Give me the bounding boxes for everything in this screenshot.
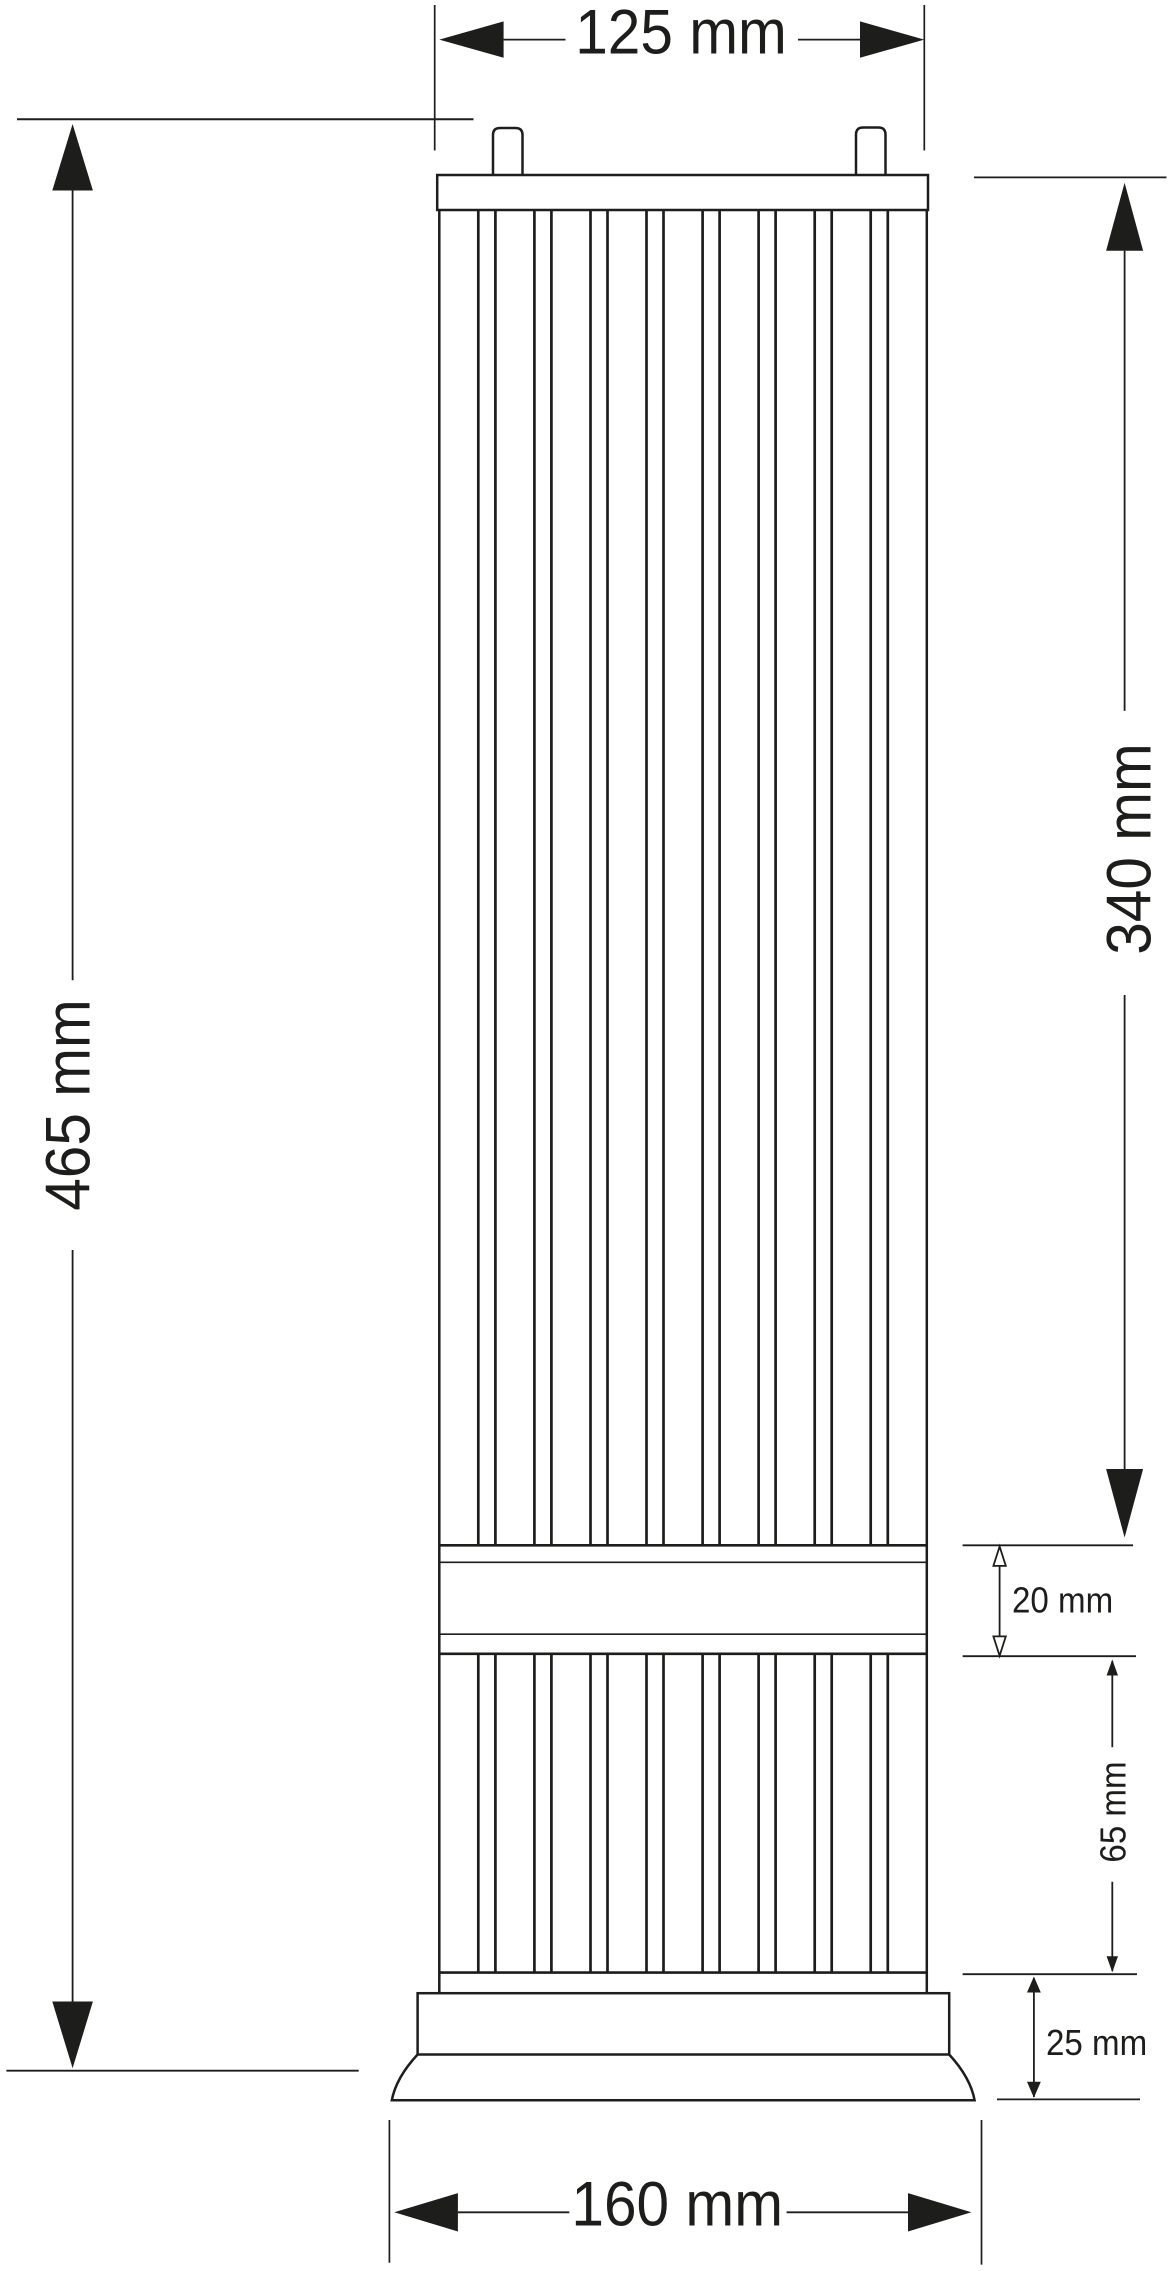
svg-text:465 mm: 465 mm <box>33 999 103 1211</box>
svg-text:125 mm: 125 mm <box>575 0 787 67</box>
svg-text:340 mm: 340 mm <box>1094 743 1164 955</box>
svg-text:20 mm: 20 mm <box>1012 1581 1113 1621</box>
svg-text:25 mm: 25 mm <box>1046 2024 1147 2064</box>
svg-text:65 mm: 65 mm <box>1094 1761 1134 1862</box>
svg-text:160 mm: 160 mm <box>571 2169 783 2239</box>
